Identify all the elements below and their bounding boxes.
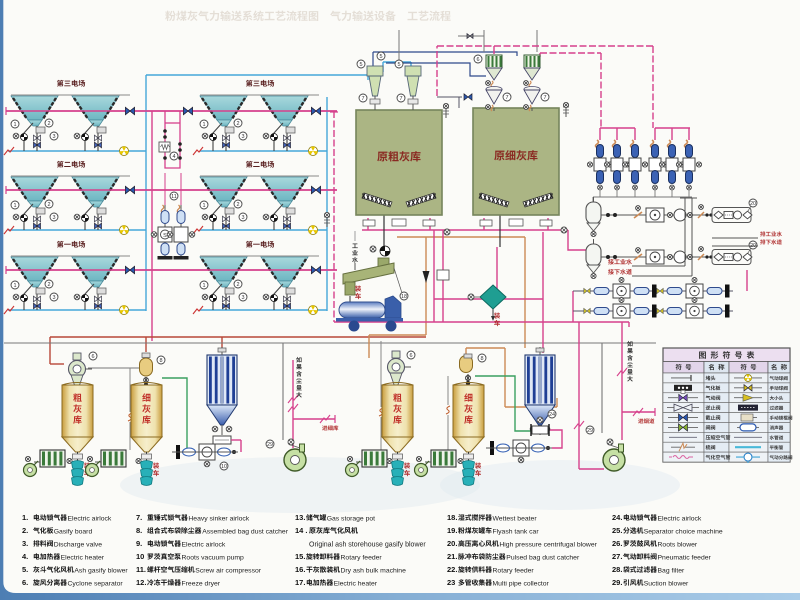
svg-text:1: 1: [13, 203, 16, 209]
svg-text:Wettest beater: Wettest beater: [493, 516, 538, 523]
svg-text:7: 7: [361, 96, 364, 102]
svg-text:19.: 19.: [447, 526, 457, 535]
svg-text:Electric airlock: Electric airlock: [68, 516, 112, 523]
svg-text:1: 1: [202, 283, 205, 289]
svg-text:4.: 4.: [22, 552, 28, 561]
svg-text:29: 29: [267, 442, 273, 448]
svg-text:8: 8: [159, 358, 162, 364]
svg-text:11.: 11.: [136, 565, 146, 574]
svg-text:Electric heater: Electric heater: [334, 581, 378, 588]
svg-text:10: 10: [136, 552, 144, 561]
svg-text:Electric heater: Electric heater: [61, 555, 105, 562]
svg-text:1: 1: [202, 122, 205, 128]
svg-text:Electric airlock: Electric airlock: [182, 542, 226, 549]
svg-text:29: 29: [587, 428, 593, 434]
svg-text:16.: 16.: [295, 565, 305, 574]
svg-text:2: 2: [47, 121, 50, 127]
svg-text:1: 1: [13, 283, 16, 289]
svg-text:20.: 20.: [447, 539, 457, 548]
svg-text:7.: 7.: [136, 513, 142, 522]
svg-text:25.: 25.: [612, 526, 622, 535]
svg-text:29.: 29.: [612, 578, 622, 587]
svg-text:2: 2: [236, 282, 239, 288]
svg-text:3: 3: [241, 295, 244, 301]
svg-text:18: 18: [401, 294, 407, 300]
svg-text:4: 4: [172, 154, 175, 160]
svg-text:3: 3: [52, 215, 55, 221]
svg-text:Roots vacuum pump: Roots vacuum pump: [182, 555, 245, 562]
svg-text:Pneumatic feeder: Pneumatic feeder: [658, 555, 712, 562]
svg-text:8: 8: [480, 356, 483, 362]
svg-text:8.: 8.: [136, 526, 142, 535]
svg-text:Discharge valve: Discharge valve: [54, 542, 103, 549]
svg-text:28.: 28.: [612, 565, 622, 574]
svg-text:5: 5: [359, 62, 362, 68]
svg-text:11: 11: [171, 194, 177, 200]
svg-text:Electric airlock: Electric airlock: [658, 516, 702, 523]
svg-text:Separator choice machine: Separator choice machine: [644, 529, 723, 536]
svg-text:Rotary feeder: Rotary feeder: [341, 555, 383, 562]
svg-text:27.: 27.: [612, 552, 622, 561]
svg-text:2: 2: [236, 121, 239, 127]
svg-text:Freeze dryer: Freeze dryer: [182, 581, 221, 588]
svg-text:6: 6: [409, 353, 412, 359]
svg-text:7: 7: [505, 95, 508, 101]
svg-text:23: 23: [447, 578, 455, 587]
svg-text:Ash gasify blower: Ash gasify blower: [74, 568, 128, 575]
svg-text:Screw air compressor: Screw air compressor: [195, 568, 261, 575]
svg-text:Gasify board: Gasify board: [54, 529, 93, 536]
svg-text:Flyash tank car: Flyash tank car: [493, 529, 540, 536]
svg-text:3: 3: [52, 134, 55, 140]
svg-text:6: 6: [476, 57, 479, 63]
svg-text:17.: 17.: [295, 578, 305, 587]
svg-text:Cyclone separator: Cyclone separator: [68, 581, 124, 588]
svg-text:24: 24: [549, 412, 555, 418]
svg-text:Gas storage pot: Gas storage pot: [327, 516, 375, 523]
svg-text:1: 1: [202, 203, 205, 209]
svg-text:9.: 9.: [136, 539, 142, 548]
svg-text:22.: 22.: [447, 565, 457, 574]
svg-text:24.: 24.: [612, 513, 622, 522]
svg-text:2.: 2.: [22, 526, 28, 535]
svg-text:3: 3: [241, 215, 244, 221]
svg-text:7: 7: [543, 95, 546, 101]
svg-text:12.: 12.: [136, 578, 146, 587]
svg-text:6.: 6.: [22, 578, 28, 587]
svg-text:S: S: [163, 233, 167, 239]
svg-text:1: 1: [13, 122, 16, 128]
svg-text:14 .: 14 .: [295, 526, 308, 535]
svg-text:26.: 26.: [612, 539, 622, 548]
svg-text:15.: 15.: [295, 552, 305, 561]
svg-text:10: 10: [221, 464, 227, 470]
svg-text:2: 2: [236, 202, 239, 208]
svg-text:Suction blower: Suction blower: [644, 581, 689, 588]
svg-text:Bag filter: Bag filter: [658, 568, 686, 575]
svg-text:1.: 1.: [22, 513, 28, 522]
svg-text:5.: 5.: [22, 565, 28, 574]
svg-text:3.: 3.: [22, 539, 28, 548]
svg-text:21.: 21.: [447, 552, 457, 561]
svg-text:18.: 18.: [447, 513, 457, 522]
svg-text:5: 5: [397, 62, 400, 68]
svg-text:5: 5: [379, 54, 382, 60]
svg-text:Heavy sinker airlock: Heavy sinker airlock: [188, 516, 249, 523]
svg-text:3: 3: [52, 295, 55, 301]
svg-text:2: 2: [47, 202, 50, 208]
svg-text:Original ash storehouse gasify: Original ash storehouse gasify blower: [309, 542, 426, 549]
svg-text:13.: 13.: [295, 513, 305, 522]
svg-text:Multi pipe collector: Multi pipe collector: [493, 581, 550, 588]
svg-text:7: 7: [399, 96, 402, 102]
svg-text:Rotary feeder: Rotary feeder: [493, 568, 535, 575]
svg-text:Dry ash bulk machine: Dry ash bulk machine: [341, 568, 407, 575]
svg-text:3: 3: [241, 134, 244, 140]
svg-text:2: 2: [47, 282, 50, 288]
svg-text:Assembled bag dust catcher: Assembled bag dust catcher: [202, 529, 289, 536]
svg-text:High pressure centrifugal blow: High pressure centrifugal blower: [499, 542, 597, 549]
svg-text:6: 6: [91, 354, 94, 360]
svg-text:Pulsed bag dust catcher: Pulsed bag dust catcher: [506, 555, 580, 562]
svg-text:Roots blower: Roots blower: [658, 542, 698, 549]
